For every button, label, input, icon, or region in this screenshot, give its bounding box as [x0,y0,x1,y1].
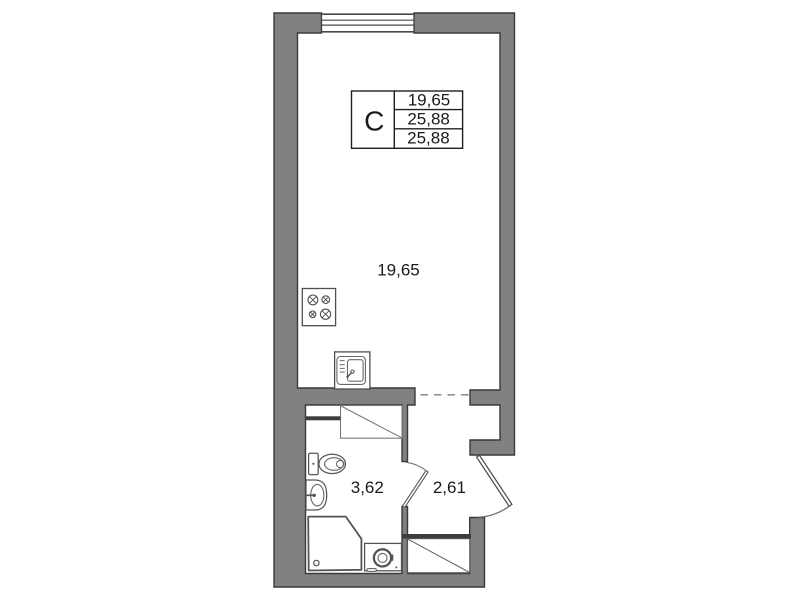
svg-text:3,62: 3,62 [351,478,384,497]
svg-text:19,65: 19,65 [408,91,451,110]
svg-text:19,65: 19,65 [377,261,420,280]
svg-text:C: C [364,105,384,136]
svg-text:2,61: 2,61 [433,478,466,497]
svg-text:25,88: 25,88 [407,129,450,148]
svg-text:25,88: 25,88 [407,109,450,128]
